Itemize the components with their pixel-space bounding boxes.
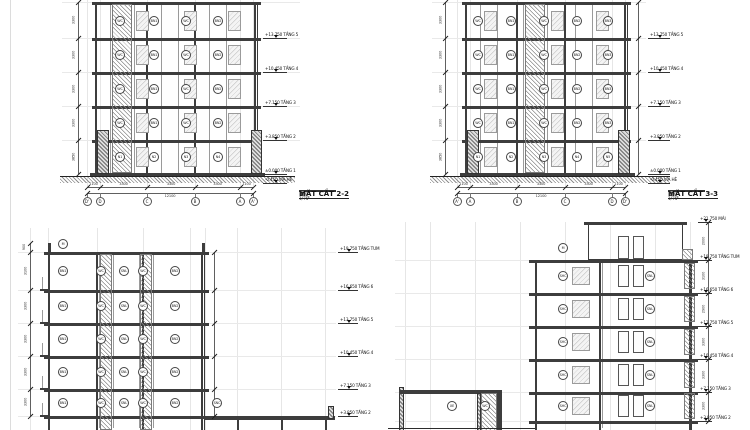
room-tag: WC xyxy=(181,16,191,26)
room-tag: SHC xyxy=(558,271,568,281)
room-tag: WC xyxy=(96,398,106,408)
drawing-scale: TL: 1/75 xyxy=(299,191,308,201)
level-guide-line xyxy=(395,326,533,327)
level-marker-text: +13.750 TẦNG 5 xyxy=(265,32,298,37)
grid-bubble: D xyxy=(96,197,105,206)
level-marker-text: +16.650 TẦNG 6 xyxy=(340,284,373,289)
room-tag: WC xyxy=(473,118,483,128)
dim-label: 3300 xyxy=(71,84,75,93)
dim-label: 12100 xyxy=(160,194,180,198)
room-tag: WC xyxy=(539,16,549,26)
room-tag: WC xyxy=(480,401,490,411)
grid-bubble: C xyxy=(143,197,152,206)
level-guide-line xyxy=(207,389,336,390)
level-line xyxy=(338,389,358,390)
dim-chain-line xyxy=(214,252,215,416)
dim-label: 2900 xyxy=(701,305,705,314)
louver-hatch xyxy=(684,393,695,419)
partition xyxy=(153,255,154,428)
level-marker-text: +3.850 TẦNG 2 xyxy=(700,415,731,420)
wardrobe xyxy=(572,267,590,285)
room-tag: BN1 xyxy=(506,16,516,26)
annex-stair-hatch xyxy=(481,393,497,430)
level-marker-text: +10.450 TẦNG 4 xyxy=(265,66,298,71)
level-line xyxy=(338,416,358,417)
door-frame xyxy=(633,331,644,353)
level-marker-text: +3.850 TẦNG 2 xyxy=(265,134,296,139)
parapet xyxy=(202,243,205,252)
level-line xyxy=(263,72,287,73)
bath-pod xyxy=(136,79,149,99)
level-line xyxy=(648,140,670,141)
level-guide-line xyxy=(432,140,462,141)
dim-label: 3300 xyxy=(581,182,597,186)
level-line xyxy=(338,290,358,291)
louver-hatch xyxy=(684,362,695,388)
level-line xyxy=(338,252,358,253)
room-tag: BN1 xyxy=(149,16,159,26)
partition xyxy=(178,5,179,173)
room-tag: WC xyxy=(96,301,106,311)
room-tag: BN3 xyxy=(603,50,613,60)
level-marker-text: +13.750 TẦNG 5 xyxy=(340,317,373,322)
room-tag: WC xyxy=(181,118,191,128)
door-frame xyxy=(633,265,644,287)
grid-bubble: D xyxy=(608,197,617,206)
bath-pod xyxy=(136,11,149,31)
level-marker-text: +3.850 TẦNG 2 xyxy=(650,134,681,139)
level-line xyxy=(698,392,712,393)
bath-pod xyxy=(551,79,564,99)
floor-slab xyxy=(529,260,698,263)
room-tag: WC xyxy=(539,118,549,128)
bath-pod xyxy=(136,147,149,167)
level-guide-line xyxy=(432,106,462,107)
level-marker-text: +13.750 TẦNG 5 xyxy=(700,320,733,325)
column xyxy=(516,2,518,176)
room-tag: SHC xyxy=(558,370,568,380)
level-line xyxy=(263,106,287,107)
floor-slab xyxy=(529,392,698,395)
dim-label: 12100 xyxy=(531,194,551,198)
floor-slab xyxy=(462,106,631,109)
louver-hatch xyxy=(684,296,695,322)
bubble-leader-line xyxy=(147,193,148,197)
dim-label: 3300 xyxy=(163,182,179,186)
room-tag: BN1 xyxy=(149,84,159,94)
room-tag: SNL xyxy=(645,304,655,314)
grid-bubble: B xyxy=(191,197,200,206)
room-tag: WC xyxy=(138,266,148,276)
room-tag: N1 xyxy=(473,152,483,162)
bath-pod xyxy=(136,113,149,133)
room-tag: BN2 xyxy=(213,50,223,60)
dim-label: 3300 xyxy=(438,84,442,93)
room-tag: BN1 xyxy=(506,118,516,128)
room-tag: BN2 xyxy=(170,367,180,377)
bath-pod xyxy=(551,113,564,133)
room-tag: SHC xyxy=(558,401,568,411)
grid-guide-line xyxy=(237,228,238,430)
room-tag: BN2 xyxy=(213,16,223,26)
room-tag: WC xyxy=(539,50,549,60)
floor-slab xyxy=(462,2,631,5)
dim-label: 3300 xyxy=(116,182,132,186)
grid-bubble: D' xyxy=(83,197,92,206)
dim-label: 2000 xyxy=(701,236,705,245)
dim-label: 3300 xyxy=(23,302,27,311)
partition xyxy=(592,5,593,173)
annex-wall xyxy=(497,393,502,430)
level-guide-line xyxy=(207,323,336,324)
balcony-rail xyxy=(42,310,43,322)
level-line xyxy=(648,183,670,184)
room-tag: SNL xyxy=(119,334,129,344)
bath-pod xyxy=(228,147,241,167)
dim-label: 3300 xyxy=(210,182,226,186)
room-tag: BN2 xyxy=(170,334,180,344)
bubble-leader-line xyxy=(565,193,566,197)
bath-pod xyxy=(228,11,241,31)
bath-pod xyxy=(551,147,564,167)
level-marker-text: +16.650 TẦNG 6 xyxy=(700,287,733,292)
balcony-rail xyxy=(42,403,43,415)
balcony-slab xyxy=(40,355,48,357)
tum-roof-slab xyxy=(584,222,687,225)
room-tag: WC xyxy=(96,367,106,377)
door-frame xyxy=(618,265,629,287)
balcony-rail xyxy=(42,343,43,355)
floor-slab xyxy=(529,326,698,329)
room-tag: WC xyxy=(138,398,148,408)
dim-label: 3300 xyxy=(486,182,502,186)
room-tag: BN1 xyxy=(58,398,68,408)
floor-slab xyxy=(462,72,631,75)
level-guide-line xyxy=(260,2,300,3)
balcony-slab xyxy=(40,415,48,417)
dim-label: 3300 xyxy=(438,50,442,59)
boundary-pillar xyxy=(618,130,630,174)
floor-slab xyxy=(529,293,698,296)
room-tag: BN3 xyxy=(603,16,613,26)
room-tag: WC xyxy=(473,50,483,60)
bath-pod xyxy=(228,79,241,99)
door-frame xyxy=(633,364,644,386)
partition xyxy=(161,5,162,173)
bath-pod xyxy=(484,45,497,65)
level-guide-line xyxy=(395,260,533,261)
level-line xyxy=(698,293,712,294)
bubble-leader-line xyxy=(240,193,241,197)
partition xyxy=(113,255,114,428)
dim-label: 3300 xyxy=(23,335,27,344)
dim-chain-line xyxy=(78,2,79,174)
level-line xyxy=(698,326,712,327)
room-tag: SNL xyxy=(645,271,655,281)
room-tag: BN1 xyxy=(58,266,68,276)
column xyxy=(535,260,537,430)
room-tag: BN3 xyxy=(603,118,613,128)
dim-label: 3300 xyxy=(23,398,27,407)
level-marker-text: +7.150 TẦNG 3 xyxy=(340,383,371,388)
room-tag: BN1 xyxy=(506,50,516,60)
level-marker-text: +10.450 TẦNG 4 xyxy=(650,66,683,71)
room-tag: SNL xyxy=(119,367,129,377)
door-frame xyxy=(618,236,629,259)
grid-bubble: B xyxy=(513,197,522,206)
bubble-leader-line xyxy=(612,193,613,197)
level-marker-text: +21.750 MÁI xyxy=(700,216,726,221)
drawing-sheet: 2 KT-03 MẶT CẮT 2-2 TL: 1/75 1 KT-03 MẶT… xyxy=(0,0,750,430)
room-tag: SHC xyxy=(558,304,568,314)
partition xyxy=(602,263,603,428)
door-frame xyxy=(618,364,629,386)
level-marker-text: +7.150 TẦNG 3 xyxy=(265,100,296,105)
room-tag: SNL xyxy=(119,301,129,311)
dim-label: 3850 xyxy=(438,152,442,161)
level-marker-text: -0.450 VỈA HÈ xyxy=(650,177,677,182)
room-tag: WC xyxy=(473,84,483,94)
dim-label: 3300 xyxy=(438,118,442,127)
louver-hatch xyxy=(684,329,695,355)
bath-pod xyxy=(136,45,149,65)
level-line xyxy=(338,323,358,324)
level-line xyxy=(648,72,670,73)
dim-label: 3300 xyxy=(71,118,75,127)
level-marker-text: -0.450 VỈA HÈ xyxy=(265,177,292,182)
louver-hatch xyxy=(684,263,695,289)
dim-label: 3300 xyxy=(533,182,549,186)
level-line xyxy=(263,183,287,184)
dim-label: 3300 xyxy=(71,50,75,59)
floor-slab xyxy=(462,38,631,41)
parapet xyxy=(48,243,51,252)
room-tag: N5 xyxy=(603,152,613,162)
room-tag: WC xyxy=(115,84,125,94)
dim-label: 3300 xyxy=(701,338,705,347)
grid-guide-line xyxy=(205,228,206,430)
level-marker-text: +10.450 TẦNG 4 xyxy=(340,350,373,355)
room-tag: WC xyxy=(539,84,549,94)
drawing-scale: TL: 1/75 xyxy=(668,191,677,201)
level-marker-text: +3.850 TẦNG 2 xyxy=(340,410,371,415)
room-tag: SNL xyxy=(645,370,655,380)
level-marker-text: ±0.000 TẦNG 1 xyxy=(650,168,681,173)
room-tag: SNL xyxy=(645,337,655,347)
level-guide-line xyxy=(432,38,462,39)
room-tag: BN2 xyxy=(572,16,582,26)
floor-slab xyxy=(44,356,209,359)
bath-pod xyxy=(551,11,564,31)
dim-chain-line xyxy=(445,2,446,174)
dim-label: 3850 xyxy=(71,152,75,161)
grid-guide-line xyxy=(325,228,326,430)
level-line xyxy=(648,174,670,175)
roof-stair-hatch xyxy=(682,249,693,260)
partition xyxy=(134,5,135,173)
room-tag: BN2 xyxy=(572,84,582,94)
level-guide-line xyxy=(207,356,336,357)
dim-chain-line xyxy=(638,2,639,174)
column xyxy=(599,260,601,430)
room-tag: WC xyxy=(115,118,125,128)
bubble-leader-line xyxy=(100,193,101,197)
level-marker-text: +7.150 TẦNG 3 xyxy=(700,386,731,391)
door-frame xyxy=(633,236,644,259)
partition xyxy=(209,5,210,173)
partition xyxy=(226,5,227,173)
room-tag: XE xyxy=(447,401,457,411)
dim-chain-line xyxy=(457,187,625,188)
room-tag: N1 xyxy=(115,152,125,162)
room-tag: WC xyxy=(115,16,125,26)
room-tag: N4 xyxy=(572,152,582,162)
balcony-rail xyxy=(42,277,43,289)
level-line xyxy=(648,106,670,107)
bath-pod xyxy=(228,113,241,133)
partition xyxy=(523,5,524,173)
room-tag: BN1 xyxy=(58,367,68,377)
wardrobe xyxy=(572,397,590,415)
annex-column xyxy=(325,419,327,430)
floor-slab xyxy=(44,323,209,326)
grid-bubble: C xyxy=(561,197,570,206)
bath-pod xyxy=(484,113,497,133)
room-tag: SNL xyxy=(645,401,655,411)
grid-guide-line xyxy=(281,228,282,430)
room-tag: WC xyxy=(138,367,148,377)
room-tag: BN3 xyxy=(603,84,613,94)
level-line xyxy=(263,140,287,141)
column xyxy=(48,252,50,430)
level-marker-text: +7.150 TẦNG 3 xyxy=(650,100,681,105)
grid-bubble: A xyxy=(466,197,475,206)
sheet-border-line xyxy=(10,0,11,430)
room-tag: BN2 xyxy=(572,50,582,60)
room-tag: SNL xyxy=(119,266,129,276)
bubble-leader-line xyxy=(517,193,518,197)
room-tag: N2 xyxy=(506,152,516,162)
door-frame xyxy=(633,298,644,320)
level-guide-line xyxy=(395,421,533,422)
level-line xyxy=(338,356,358,357)
dim-label: 3100 xyxy=(701,272,705,281)
door-frame xyxy=(618,331,629,353)
grid-bubble: A' xyxy=(249,197,258,206)
room-tag: WC xyxy=(115,50,125,60)
dim-label: 3300 xyxy=(701,402,705,411)
level-line xyxy=(648,38,670,39)
dim-chain-line xyxy=(87,187,253,188)
level-guide-line xyxy=(432,2,462,3)
floor-slab xyxy=(529,421,698,424)
bubble-leader-line xyxy=(470,193,471,197)
room-tag: WC xyxy=(96,334,106,344)
balcony-slab xyxy=(40,289,48,291)
room-tag: SNL xyxy=(119,398,129,408)
floor-slab xyxy=(44,389,209,392)
level-marker-text: +10.450 TẦNG 4 xyxy=(700,353,733,358)
room-tag: BN1 xyxy=(149,118,159,128)
door-frame xyxy=(633,395,644,417)
partition xyxy=(110,5,111,173)
annex-roof-slab xyxy=(205,416,335,420)
level-marker-text: +19.750 TẦNG TUM xyxy=(700,254,739,259)
room-tag: BN1 xyxy=(149,50,159,60)
bath-pod xyxy=(484,147,497,167)
column xyxy=(201,252,203,430)
balcony-slab xyxy=(40,388,48,390)
level-guide-line xyxy=(207,290,336,291)
floor-slab xyxy=(462,140,631,143)
annex-end-pillar xyxy=(328,406,334,419)
room-tag: BN2 xyxy=(572,118,582,128)
bubble-leader-line xyxy=(195,193,196,197)
room-tag: N4 xyxy=(213,152,223,162)
room-tag: BN1 xyxy=(58,301,68,311)
partition xyxy=(497,5,498,173)
room-tag: BN1 xyxy=(506,84,516,94)
floor-slab xyxy=(529,359,698,362)
annex-column xyxy=(281,419,283,430)
level-marker-text: ±0.000 TẦNG 1 xyxy=(265,168,296,173)
room-tag: BN2 xyxy=(170,266,180,276)
wardrobe xyxy=(572,300,590,318)
room-tag: N2 xyxy=(149,152,159,162)
ground-line xyxy=(388,428,535,429)
room-tag: M xyxy=(558,243,568,253)
room-tag: M xyxy=(58,239,68,249)
room-tag: BN2 xyxy=(213,118,223,128)
dim-label: 3300 xyxy=(71,15,75,24)
floor-slab xyxy=(44,290,209,293)
room-tag: SNC xyxy=(212,398,222,408)
dim-label: 3100 xyxy=(23,266,27,275)
level-guide-line xyxy=(207,252,336,253)
level-line xyxy=(698,222,712,223)
floor-slab xyxy=(44,252,209,255)
bath-pod xyxy=(228,45,241,65)
room-tag: N3 xyxy=(181,152,191,162)
level-guide-line xyxy=(395,359,533,360)
level-marker-text: +13.750 TẦNG 5 xyxy=(650,32,683,37)
grid-guide-line xyxy=(87,0,88,187)
dim-label: 3300 xyxy=(438,15,442,24)
grid-guide-line xyxy=(457,0,458,187)
balcony-slab xyxy=(40,322,48,324)
grid-bubble: A xyxy=(236,197,245,206)
level-line xyxy=(698,359,712,360)
level-guide-line xyxy=(395,293,533,294)
column xyxy=(564,2,566,176)
dim-label: 900 xyxy=(22,244,26,250)
room-tag: WC xyxy=(96,266,106,276)
room-tag: WC xyxy=(138,334,148,344)
level-line xyxy=(698,421,712,422)
room-tag: WC xyxy=(181,50,191,60)
bath-pod xyxy=(551,45,564,65)
room-tag: BN2 xyxy=(170,398,180,408)
room-tag: SHC xyxy=(558,337,568,347)
room-tag: WC xyxy=(473,16,483,26)
wardrobe xyxy=(572,333,590,351)
room-tag: BN2 xyxy=(170,301,180,311)
room-tag: WC xyxy=(181,84,191,94)
boundary-pillar xyxy=(97,130,109,174)
level-line xyxy=(263,174,287,175)
door-frame xyxy=(618,298,629,320)
grid-bubble: D' xyxy=(621,197,630,206)
